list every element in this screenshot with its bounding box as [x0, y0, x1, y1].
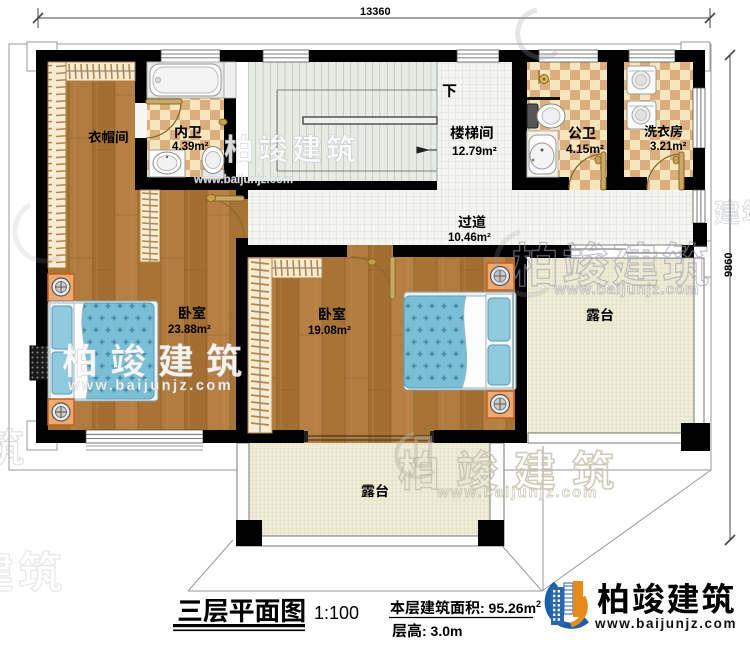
- svg-text:: 95.26m: : 95.26m: [480, 600, 536, 616]
- svg-text:www.baijunjz.com: www.baijunjz.com: [594, 616, 737, 631]
- svg-text:12.79m²: 12.79m²: [452, 144, 497, 158]
- svg-text:4.39m²: 4.39m²: [172, 141, 209, 153]
- svg-text:www.baijunjz.com: www.baijunjz.com: [193, 174, 293, 186]
- svg-text:10.46m²: 10.46m²: [448, 232, 491, 244]
- svg-text:9860: 9860: [723, 253, 735, 277]
- svg-text:3.21m²: 3.21m²: [650, 141, 687, 153]
- svg-text:1:100: 1:100: [314, 603, 359, 623]
- svg-text:23.88m²: 23.88m²: [168, 324, 211, 336]
- svg-text:: 3.0m: : 3.0m: [422, 623, 462, 639]
- svg-text:2: 2: [536, 599, 541, 609]
- svg-text:www.baijunjz.com: www.baijunjz.com: [67, 378, 233, 394]
- svg-text:www.baijunjz.com: www.baijunjz.com: [553, 281, 699, 298]
- svg-text:4.15m²: 4.15m²: [566, 142, 604, 156]
- svg-text:www.baijunjz.com: www.baijunjz.com: [436, 484, 598, 501]
- svg-text:19.08m²: 19.08m²: [308, 325, 351, 337]
- svg-text:13360: 13360: [360, 6, 391, 18]
